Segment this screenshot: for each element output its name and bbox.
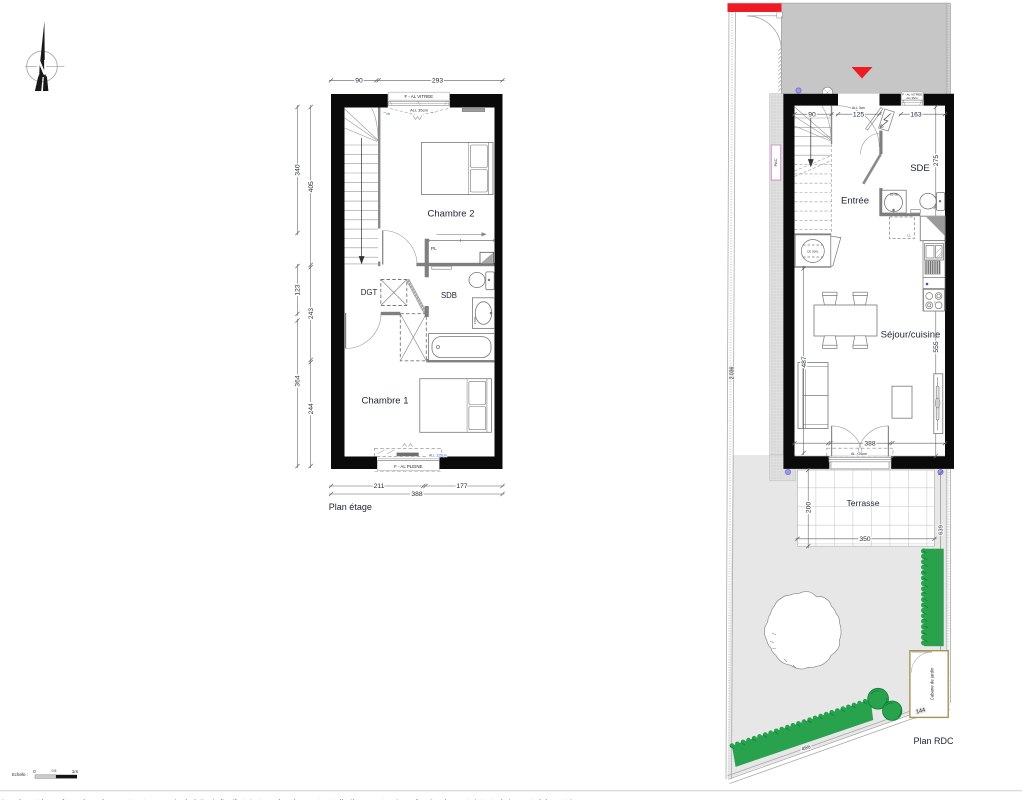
svg-text:293: 293 bbox=[432, 78, 443, 85]
svg-text:200: 200 bbox=[805, 502, 812, 513]
svg-text:F - AL VITREE: F - AL VITREE bbox=[404, 94, 433, 99]
svg-text:125: 125 bbox=[853, 111, 864, 118]
svg-text:243: 243 bbox=[308, 308, 315, 319]
svg-text:0.5: 0.5 bbox=[52, 769, 57, 773]
svg-text:405: 405 bbox=[308, 181, 315, 192]
svg-text:CE 200L: CE 200L bbox=[807, 249, 819, 253]
svg-text:388: 388 bbox=[864, 440, 875, 447]
svg-text:1m: 1m bbox=[72, 769, 79, 774]
svg-text:ALL 95cm: ALL 95cm bbox=[906, 96, 918, 100]
svg-text:Terrasse: Terrasse bbox=[847, 498, 880, 508]
svg-text:PL: PL bbox=[431, 246, 437, 251]
svg-text:0: 0 bbox=[33, 769, 36, 774]
svg-text:SDB: SDB bbox=[441, 291, 457, 300]
svg-text:N: N bbox=[36, 57, 47, 80]
svg-text:PAC: PAC bbox=[773, 158, 778, 166]
svg-text:Entrée: Entrée bbox=[841, 196, 869, 207]
svg-text:Plan étage: Plan étage bbox=[329, 502, 372, 512]
svg-text:555: 555 bbox=[933, 341, 940, 352]
svg-text:ALL 35cm: ALL 35cm bbox=[410, 107, 429, 112]
svg-text:Séjour/cuisine: Séjour/cuisine bbox=[881, 330, 941, 341]
svg-text:F: F bbox=[934, 300, 936, 304]
svg-text:388: 388 bbox=[411, 491, 422, 498]
svg-text:211: 211 bbox=[374, 483, 385, 490]
svg-text:123: 123 bbox=[295, 284, 302, 295]
svg-text:Chambre 1: Chambre 1 bbox=[362, 396, 409, 407]
svg-text:90: 90 bbox=[355, 78, 363, 85]
svg-text:90: 90 bbox=[808, 111, 816, 118]
svg-text:487: 487 bbox=[801, 356, 808, 367]
svg-text:2 036: 2 036 bbox=[730, 367, 736, 380]
svg-text:275: 275 bbox=[933, 155, 940, 166]
svg-text:340: 340 bbox=[295, 164, 302, 175]
svg-text:177: 177 bbox=[456, 483, 467, 490]
svg-text:Plan RDC: Plan RDC bbox=[914, 736, 955, 746]
svg-text:F - AL PLEINE: F - AL PLEINE bbox=[394, 464, 422, 469]
svg-text:639: 639 bbox=[939, 525, 945, 535]
svg-text:ALL 0cm: ALL 0cm bbox=[852, 106, 865, 110]
svg-text:350: 350 bbox=[859, 536, 870, 543]
svg-text:SDE: SDE bbox=[910, 163, 930, 174]
svg-text:LL: LL bbox=[907, 234, 911, 238]
svg-text:Cabane de jardin: Cabane de jardin bbox=[930, 667, 935, 700]
svg-text:DGT: DGT bbox=[361, 288, 378, 297]
svg-text:AL +25cm: AL +25cm bbox=[851, 452, 867, 456]
svg-text:FS01: FS01 bbox=[473, 316, 477, 324]
svg-text:364: 364 bbox=[295, 375, 302, 386]
svg-text:10+90: 10+90 bbox=[890, 192, 899, 196]
svg-text:244: 244 bbox=[308, 403, 315, 414]
svg-text:Echelle :: Echelle : bbox=[12, 772, 28, 777]
svg-text:ALL 115cm: ALL 115cm bbox=[429, 453, 447, 457]
svg-text:Chambre 2: Chambre 2 bbox=[428, 209, 475, 220]
svg-text:163: 163 bbox=[910, 111, 921, 118]
